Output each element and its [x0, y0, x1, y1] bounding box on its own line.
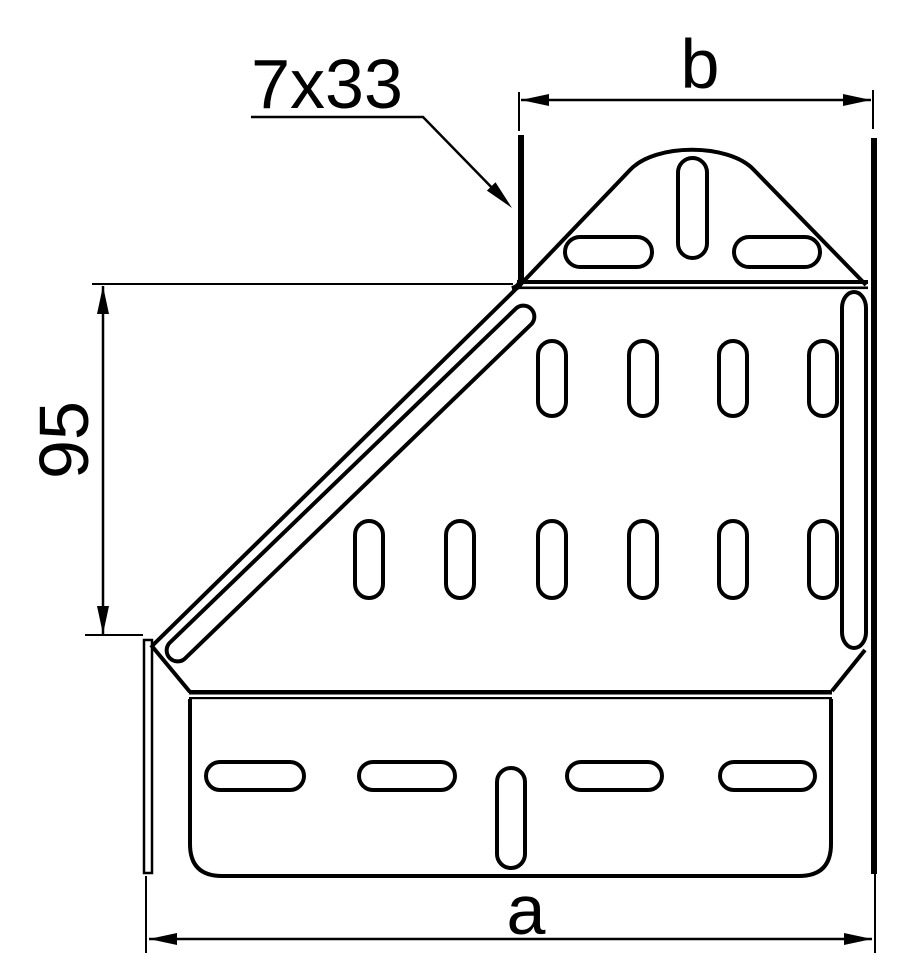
slot	[629, 521, 657, 598]
flange-fold-band-thick	[517, 280, 868, 284]
flange-slot-left	[565, 237, 652, 267]
reducer-technical-drawing: 7x33 b 95 a	[0, 0, 912, 973]
dim-b-arrow-right	[843, 94, 871, 106]
bottom-panel-slots	[206, 762, 815, 868]
body-slot-row-lower	[355, 521, 837, 598]
bottom-fold-band-thick	[189, 690, 832, 695]
dim-95-label: 95	[25, 401, 103, 479]
flange-slot-center-vertical	[678, 158, 707, 258]
dim-b-label: b	[681, 25, 720, 103]
dim-a-arrow-left	[149, 933, 177, 945]
right-transition-diagonal	[832, 650, 865, 691]
slot	[720, 762, 815, 790]
dim-95-arrow-bottom	[97, 606, 109, 634]
flange-slot-right	[734, 237, 820, 267]
slope-rail	[167, 306, 535, 662]
slot	[538, 521, 566, 598]
slot	[719, 341, 747, 416]
slot	[446, 521, 474, 598]
part-outline-group	[144, 135, 874, 876]
slot	[809, 341, 837, 416]
slot	[355, 521, 383, 598]
bottom-fold-band-thin	[189, 697, 832, 699]
slot	[206, 762, 304, 790]
flange-left-edge	[512, 135, 521, 289]
callout-leader-line	[251, 117, 500, 196]
slot	[567, 762, 662, 790]
slot	[719, 521, 747, 598]
dim-95-arrow-top	[97, 286, 109, 314]
slot	[538, 341, 566, 416]
drawing-canvas: 7x33 b 95 a	[0, 0, 912, 973]
slot	[629, 341, 657, 416]
right-side-wall-strip	[842, 292, 866, 648]
dim-a-arrow-right	[844, 933, 872, 945]
body-slot-row-upper	[538, 341, 837, 416]
dim-a-label: a	[507, 871, 546, 949]
callout-7x33-label: 7x33	[251, 45, 403, 123]
slot	[359, 762, 455, 790]
flange-fold-band-thin	[517, 287, 868, 290]
left-side-wall-strip	[144, 640, 152, 873]
dim-b-arrow-left	[521, 94, 549, 106]
slot	[809, 521, 837, 598]
slot-center-vertical	[497, 768, 525, 868]
